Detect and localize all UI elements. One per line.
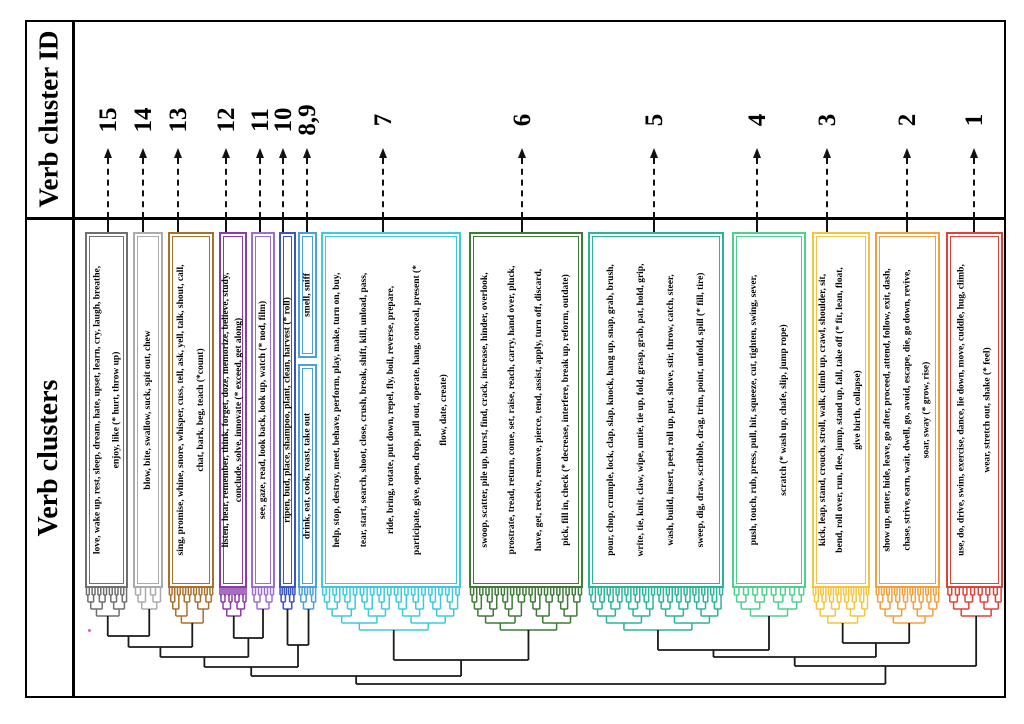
cluster-id-label-6: 6 xyxy=(509,114,537,127)
dashed-arrow-line xyxy=(653,158,655,218)
verb-list-text: push, touch, rub, press, pull, hit, sque… xyxy=(734,236,804,584)
verb-cluster-box-15: love, wake up, rest, sleep, dream, hate,… xyxy=(85,232,128,588)
dashed-arrow-line xyxy=(826,158,828,218)
arrow-stem xyxy=(177,219,179,233)
arrow-stem xyxy=(142,219,144,233)
row-divider xyxy=(25,217,1006,220)
arrow-up-icon xyxy=(970,148,978,158)
arrow-stem xyxy=(973,219,975,233)
verb-list-text: sing, promise, whine, snore, whisper, cu… xyxy=(170,236,212,584)
figure-page: { "figure": { "row1_header": "Verb clust… xyxy=(0,0,1024,724)
arrow-up-icon xyxy=(256,148,264,158)
verb-cluster-box-11: see, gaze, read, look back, look up, wat… xyxy=(251,232,275,588)
verb-cluster-box-5: pour, chop, crumple, lock, clap, slap, k… xyxy=(588,232,724,588)
verb-cluster-box-2: show up, enter, hide, leave, go after, p… xyxy=(875,232,940,588)
cluster-id-label-3: 3 xyxy=(814,114,842,127)
cluster-id-label-1: 1 xyxy=(961,114,989,127)
dashed-arrow-line xyxy=(382,158,384,218)
arrow-stem xyxy=(653,219,655,233)
arrow-up-icon xyxy=(139,148,147,158)
verb-cluster-box-12: listen, hear, remember, think, forget, d… xyxy=(219,232,247,588)
arrow-up-icon xyxy=(104,148,112,158)
dashed-arrow-line xyxy=(756,158,758,218)
row-header-verb-clusters: Verb clusters xyxy=(33,380,65,537)
verb-list-text: swoop, scatter, pile up, burst, find, cr… xyxy=(471,236,581,584)
verb-cluster-box-1: use, do, drive, swim, exercise, dance, l… xyxy=(946,232,1003,588)
arrow-stem xyxy=(826,219,828,233)
dashed-arrow-line xyxy=(107,158,109,218)
dashed-arrow-line xyxy=(259,158,261,218)
verb-list-text: kick, leap, stand, crouch, stroll, walk,… xyxy=(814,236,868,584)
verb-list-text: blow, bite, swallow, suck, spit out, che… xyxy=(135,236,161,584)
header-column-divider xyxy=(72,20,75,698)
cluster-id-label-5: 5 xyxy=(641,114,669,127)
arrow-stem xyxy=(906,219,908,233)
verb-cluster-box-3: kick, leap, stand, crouch, stroll, walk,… xyxy=(812,232,870,588)
verb-list-text: help, stop, destroy, meet, behave, perfo… xyxy=(323,236,459,584)
cluster-id-label-15: 15 xyxy=(95,108,123,133)
arrow-up-icon xyxy=(823,148,831,158)
verb-cluster-box-14: blow, bite, swallow, suck, spit out, che… xyxy=(133,232,163,588)
arrow-stem xyxy=(225,219,227,233)
arrow-stem xyxy=(107,219,109,233)
cluster-id-label-4: 4 xyxy=(744,114,772,127)
arrow-up-icon xyxy=(518,148,526,158)
verb-cluster-box-9: smell, sniff xyxy=(298,232,317,358)
verb-list-text: pour, chop, crumple, lock, clap, slap, k… xyxy=(590,236,722,584)
verb-cluster-box-13: sing, promise, whine, snore, whisper, cu… xyxy=(168,232,214,588)
arrow-up-icon xyxy=(303,148,311,158)
dashed-arrow-line xyxy=(906,158,908,218)
verb-cluster-box-8: drink, eat, cook, roast, take out xyxy=(298,364,317,588)
verb-cluster-box-10: ripen, bud, place, shampoo, plant, clean… xyxy=(279,232,296,588)
cluster-id-label-7: 7 xyxy=(370,114,398,127)
verb-list-text: love, wake up, rest, sleep, dream, hate,… xyxy=(87,236,126,584)
dashed-arrow-line xyxy=(521,158,523,218)
dashed-arrow-line xyxy=(306,158,308,218)
arrow-stem xyxy=(282,219,284,233)
cluster-id-label-13: 13 xyxy=(165,108,193,133)
arrow-up-icon xyxy=(753,148,761,158)
dashed-arrow-line xyxy=(225,158,227,218)
arrow-stem xyxy=(259,219,261,233)
verb-cluster-box-4: push, touch, rub, press, pull, hit, sque… xyxy=(732,232,806,588)
arrow-up-icon xyxy=(650,148,658,158)
dashed-arrow-line xyxy=(973,158,975,218)
arrow-stem xyxy=(756,219,758,233)
arrow-up-icon xyxy=(903,148,911,158)
verb-list-text: listen, hear, remember, think, forget, d… xyxy=(221,236,245,584)
arrow-up-icon xyxy=(222,148,230,158)
cluster-id-label-12: 12 xyxy=(213,108,241,133)
arrow-stem xyxy=(306,219,308,233)
arrow-up-icon xyxy=(174,148,182,158)
cluster-id-label-2: 2 xyxy=(894,114,922,127)
stray-pixel-artifact xyxy=(88,629,91,632)
verb-list-text: see, gaze, read, look back, look up, wat… xyxy=(253,236,273,584)
verb-cluster-box-6: swoop, scatter, pile up, burst, find, cr… xyxy=(469,232,583,588)
dashed-arrow-line xyxy=(142,158,144,218)
row-header-verb-cluster-id: Verb cluster ID xyxy=(34,31,65,208)
verb-list-text: use, do, drive, swim, exercise, dance, l… xyxy=(948,236,1001,584)
arrow-up-icon xyxy=(279,148,287,158)
verb-list-text: show up, enter, hide, leave, go after, p… xyxy=(877,236,938,584)
dashed-arrow-line xyxy=(177,158,179,218)
cluster-id-label-14: 14 xyxy=(130,108,158,133)
verb-cluster-box-7: help, stop, destroy, meet, behave, perfo… xyxy=(321,232,461,588)
dashed-arrow-line xyxy=(282,158,284,218)
arrow-stem xyxy=(521,219,523,233)
verb-list-text: smell, sniff xyxy=(300,236,315,354)
verb-list-text: drink, eat, cook, roast, take out xyxy=(300,368,315,584)
arrow-up-icon xyxy=(379,148,387,158)
cluster-id-label-8-9: 8,9 xyxy=(294,104,322,135)
verb-list-text: ripen, bud, place, shampoo, plant, clean… xyxy=(281,236,294,584)
arrow-stem xyxy=(382,219,384,233)
